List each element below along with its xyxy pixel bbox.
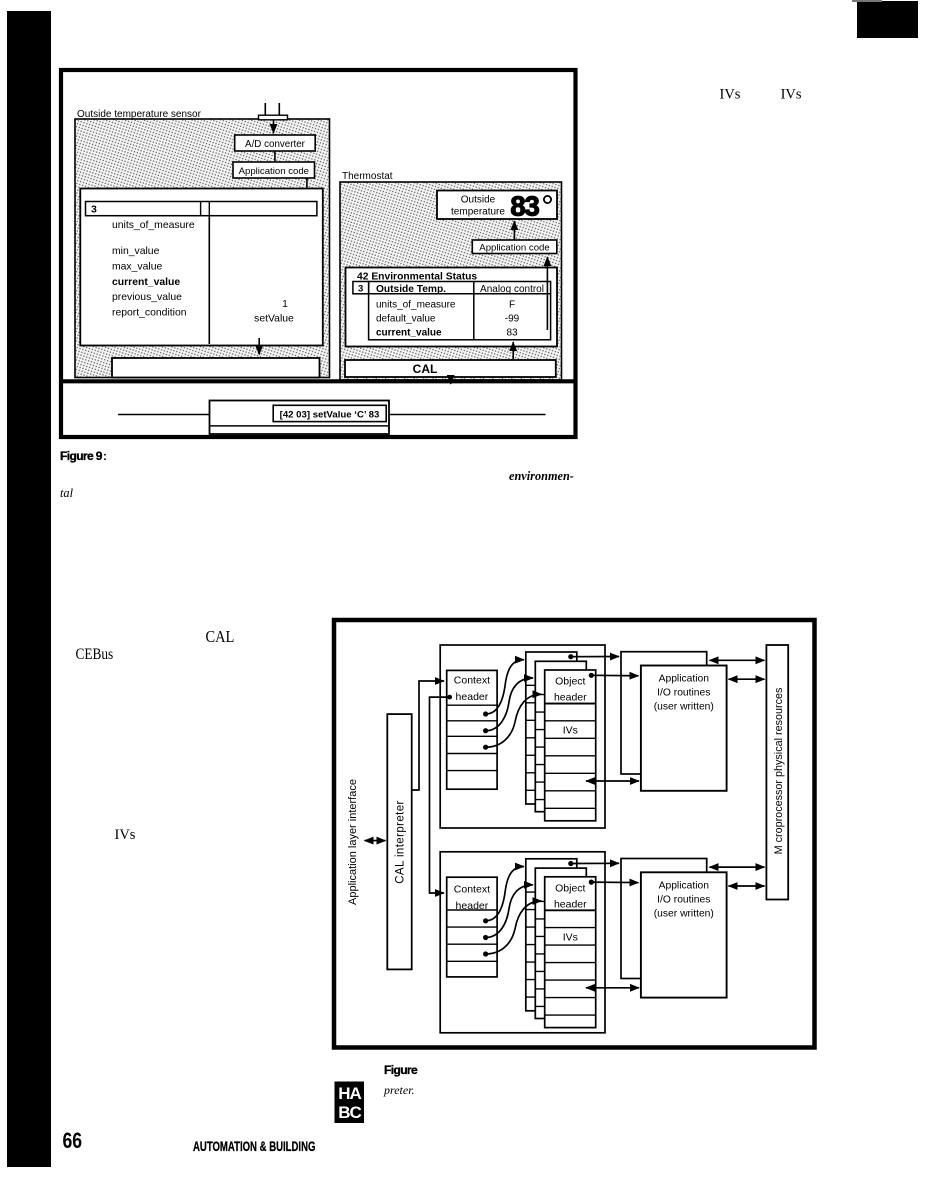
svg-text:units_of_measure: units_of_measure (376, 300, 456, 311)
svg-text:Context: Context (454, 883, 490, 895)
svg-text:IVs: IVs (115, 827, 136, 843)
svg-text:preter.: preter. (383, 1083, 415, 1097)
svg-text:IVs: IVs (781, 87, 802, 103)
svg-text:CAL interpreter: CAL interpreter (394, 800, 406, 884)
svg-text:BC: BC (338, 1103, 361, 1122)
svg-text:Object: Object (555, 676, 585, 688)
svg-text:Outside Temp.: Outside Temp. (376, 284, 446, 295)
svg-text:Analog control: Analog control (480, 284, 544, 295)
svg-text:tal: tal (60, 486, 74, 500)
svg-text:66: 66 (63, 1129, 83, 1153)
svg-text:Application: Application (659, 674, 710, 685)
svg-text:header: header (554, 692, 587, 704)
svg-text:83: 83 (510, 191, 539, 222)
svg-text:[42 03] setValue ‘C’ 83: [42 03] setValue ‘C’ 83 (280, 409, 380, 420)
svg-text:Figure: Figure (384, 1063, 418, 1077)
svg-text:Thermostat: Thermostat (342, 171, 393, 182)
svg-text:1: 1 (282, 299, 288, 310)
svg-text:CEBus: CEBus (76, 646, 114, 663)
svg-text:CAL: CAL (206, 628, 235, 646)
svg-text:Application: Application (659, 880, 710, 891)
svg-text:IVs: IVs (563, 931, 578, 943)
svg-text:Application code: Application code (479, 243, 549, 254)
svg-text:(user written): (user written) (654, 908, 714, 919)
svg-text:HA: HA (338, 1084, 361, 1103)
svg-text:default_value: default_value (376, 314, 436, 325)
svg-text:IVs: IVs (563, 725, 578, 737)
svg-text:max_value: max_value (112, 262, 162, 273)
svg-text:units_of_measure: units_of_measure (112, 220, 195, 231)
svg-text:Application layer interface: Application layer interface (347, 779, 359, 905)
svg-text::: : (103, 451, 107, 463)
svg-text:Application code: Application code (239, 166, 309, 177)
svg-text:3: 3 (91, 204, 97, 216)
svg-text:AUTOMATION & BUILDING: AUTOMATION & BUILDING (193, 1138, 315, 1154)
svg-text:Context: Context (454, 675, 490, 687)
svg-text:IVs: IVs (720, 87, 741, 103)
svg-text:previous_value: previous_value (112, 292, 182, 303)
svg-text:3: 3 (358, 284, 363, 295)
svg-text:I/O routines: I/O routines (657, 894, 710, 905)
svg-text:I/O routines: I/O routines (657, 688, 710, 699)
svg-text:Object: Object (555, 882, 585, 894)
svg-text:-99: -99 (505, 314, 520, 325)
svg-text:header: header (456, 691, 489, 703)
svg-text:temperature: temperature (451, 207, 505, 218)
svg-text:header: header (554, 898, 587, 910)
svg-text:current_value: current_value (112, 277, 180, 288)
svg-text:83: 83 (506, 328, 518, 339)
svg-text:setValue: setValue (254, 314, 294, 325)
svg-text:CAL: CAL (413, 362, 438, 376)
svg-text:A/D converter: A/D converter (245, 139, 306, 150)
svg-text:min_value: min_value (112, 246, 160, 257)
svg-text:header: header (456, 900, 489, 912)
svg-text:F: F (509, 300, 515, 311)
svg-text:(user written): (user written) (654, 702, 714, 713)
svg-text:report_condition: report_condition (112, 308, 187, 319)
svg-text:Outside: Outside (461, 195, 496, 206)
svg-text:Figure 9: Figure 9 (60, 449, 103, 463)
svg-text:Outside temperature sensor: Outside temperature sensor (77, 109, 202, 120)
svg-text:environmen-: environmen- (509, 469, 574, 483)
svg-text:current_value: current_value (376, 328, 442, 339)
svg-text:M croprocessor physical resour: M croprocessor physical resources (773, 687, 785, 854)
